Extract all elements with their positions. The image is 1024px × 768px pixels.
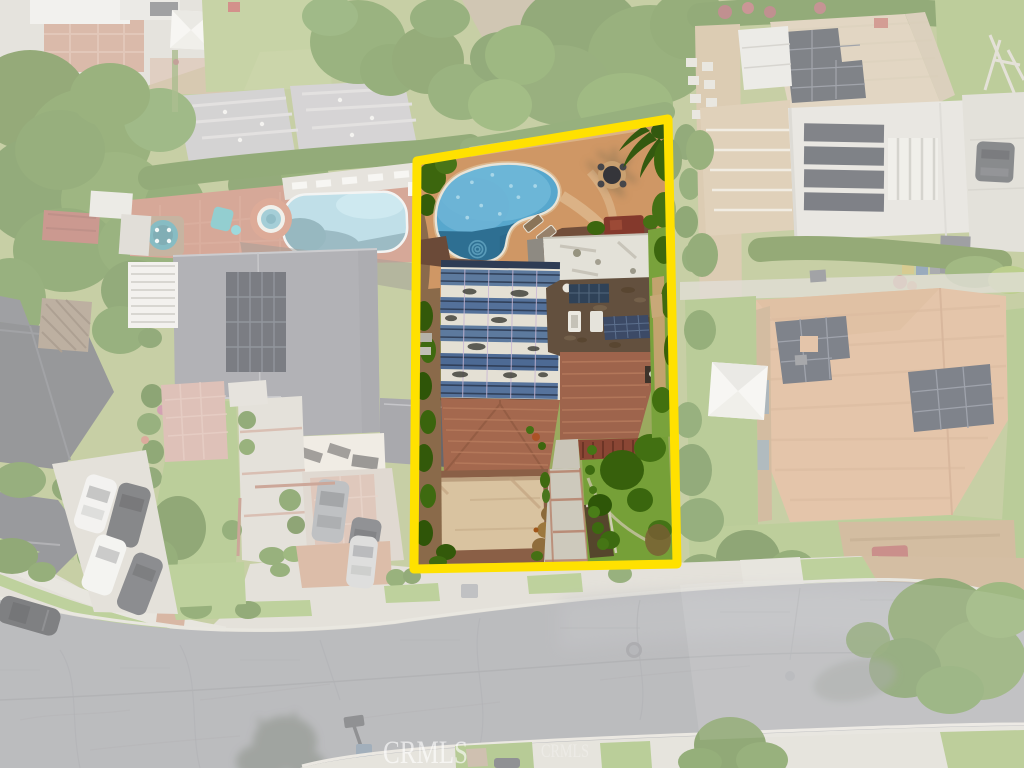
svg-text:CRMLS: CRMLS bbox=[383, 735, 468, 768]
svg-text:CRMLS: CRMLS bbox=[541, 741, 589, 762]
